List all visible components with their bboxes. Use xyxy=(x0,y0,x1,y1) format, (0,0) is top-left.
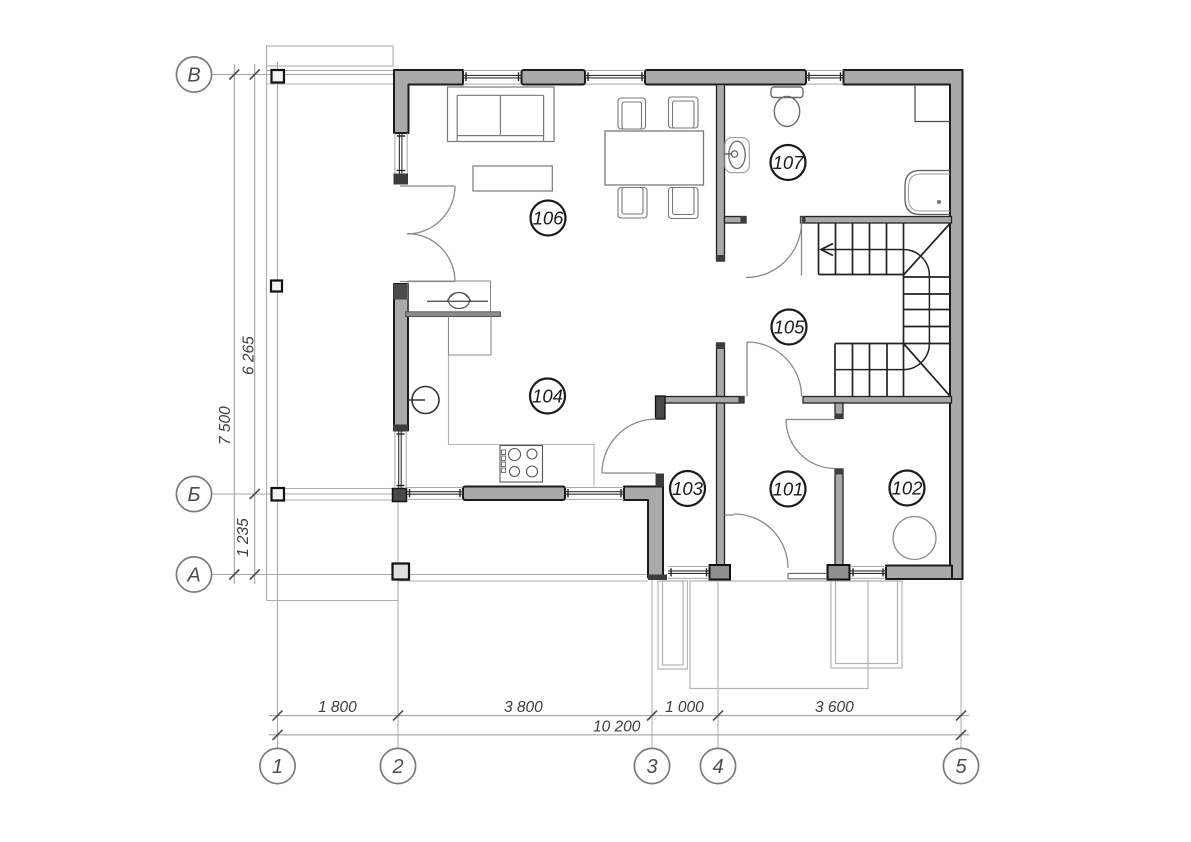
svg-text:4: 4 xyxy=(712,756,723,778)
svg-text:10 200: 10 200 xyxy=(593,719,641,736)
svg-text:5: 5 xyxy=(955,756,967,778)
svg-text:В: В xyxy=(187,65,200,87)
svg-text:103: 103 xyxy=(672,478,704,499)
svg-text:1: 1 xyxy=(272,756,283,778)
svg-text:105: 105 xyxy=(774,317,806,338)
svg-text:2: 2 xyxy=(391,756,403,778)
svg-text:3: 3 xyxy=(646,756,657,778)
svg-text:1 000: 1 000 xyxy=(665,699,704,716)
svg-text:Б: Б xyxy=(187,484,200,506)
svg-text:1 800: 1 800 xyxy=(318,699,357,716)
svg-text:1 235: 1 235 xyxy=(235,518,252,557)
svg-text:107: 107 xyxy=(773,152,805,173)
svg-text:А: А xyxy=(186,565,200,587)
svg-text:3 800: 3 800 xyxy=(504,699,543,716)
svg-text:3 600: 3 600 xyxy=(815,699,854,716)
svg-text:7 500: 7 500 xyxy=(217,406,234,445)
svg-text:102: 102 xyxy=(892,478,924,499)
svg-text:106: 106 xyxy=(533,208,565,229)
svg-text:104: 104 xyxy=(532,386,563,407)
svg-text:6 265: 6 265 xyxy=(241,336,258,375)
svg-text:101: 101 xyxy=(773,479,804,500)
